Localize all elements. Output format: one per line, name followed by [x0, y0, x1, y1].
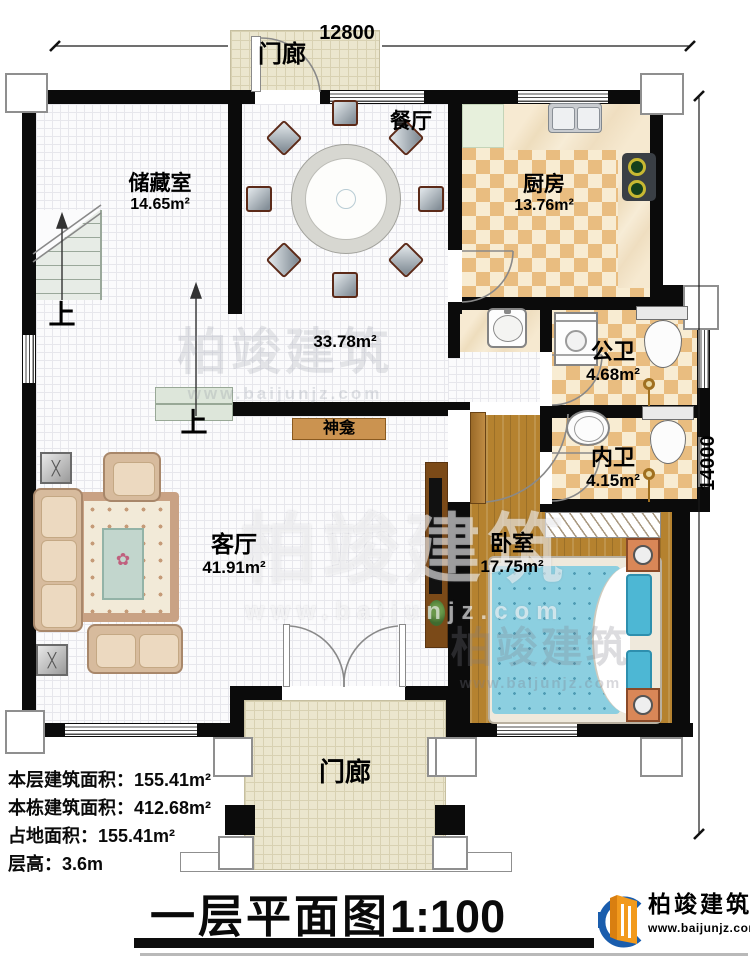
room-area: 17.75m² [452, 557, 572, 576]
room-label-private-bath: 内卫 4.15m² [558, 446, 668, 490]
landing-up-label: 上 [178, 408, 210, 438]
room-name: 厨房 [488, 173, 600, 197]
logo-building-side [610, 895, 617, 940]
brand-name: 柏竣建筑 [648, 892, 748, 918]
door-arc-bedroom [486, 414, 568, 502]
room-name: 内卫 [558, 446, 668, 471]
info-label: 本栋建筑面积： [8, 798, 134, 818]
logo-window [628, 906, 631, 938]
info-label: 占地面积： [8, 826, 98, 846]
stair-arrow-head [57, 214, 67, 228]
stairs-up-label: 上 [46, 300, 78, 330]
logo-window [621, 904, 624, 936]
brand-url: www.baijunjz.com [648, 922, 748, 935]
stair-diagonal [33, 205, 101, 254]
room-label-bedroom: 卧室 17.75m² [452, 532, 572, 576]
room-label-kitchen: 厨房 13.76m² [488, 173, 600, 214]
brand-logo-icon [592, 886, 650, 952]
room-name: 客厅 [172, 532, 296, 558]
info-label: 层高： [8, 854, 62, 874]
info-line-footprint: 占地面积：155.41m² [8, 822, 238, 850]
room-name: 公卫 [558, 340, 668, 365]
room-area: 13.76m² [488, 197, 600, 215]
room-label-dining: 餐厅 [378, 110, 444, 134]
door-arc-porch-bottom-right [344, 626, 398, 687]
room-label-hall-area: 33.78m² [300, 332, 390, 351]
info-label: 本层建筑面积： [8, 770, 134, 790]
brand-logo: 柏竣建筑 www.baijunjz.com [592, 884, 748, 960]
info-value: 412.68m² [134, 798, 211, 818]
info-line-floor-area: 本层建筑面积：155.41m² [8, 766, 238, 794]
dimension-height-label: 14000 [697, 419, 719, 507]
info-line-height: 层高：3.6m [8, 850, 238, 878]
room-name: 卧室 [452, 532, 572, 557]
drawing-title-text: 一层平面图 [150, 891, 390, 942]
room-label-porch-top: 门廊 [240, 42, 324, 69]
drawing-title-scale: 1:100 [390, 891, 505, 942]
room-label-living: 客厅 41.91m² [172, 532, 296, 577]
room-area: 4.68m² [558, 365, 668, 384]
door-arc-kitchen [462, 251, 513, 302]
floorplan-canvas: ✿ ╳ ╳ 神龛 [0, 0, 750, 976]
title-underline [134, 938, 594, 948]
info-block: 本层建筑面积：155.41m² 本栋建筑面积：412.68m² 占地面积：155… [8, 766, 238, 878]
info-value: 3.6m [62, 854, 103, 874]
stair-arrow-head-2 [191, 284, 201, 298]
info-value: 155.41m² [134, 770, 211, 790]
drawing-title: 一层平面图1:100 [150, 880, 620, 945]
door-arc-porch-bottom-left [290, 626, 344, 687]
room-label-public-bath: 公卫 4.68m² [558, 340, 668, 384]
info-line-building-area: 本栋建筑面积：412.68m² [8, 794, 238, 822]
room-area: 4.15m² [558, 471, 668, 490]
room-area: 14.65m² [100, 196, 220, 214]
stair-diagonal [33, 213, 101, 262]
room-area: 41.91m² [172, 558, 296, 577]
room-label-porch-bottom: 门廊 [300, 758, 390, 787]
room-name: 储藏室 [100, 172, 220, 196]
logo-building [617, 895, 637, 944]
info-value: 155.41m² [98, 826, 175, 846]
logo-dots [598, 912, 604, 928]
room-label-storage: 储藏室 14.65m² [100, 172, 220, 213]
